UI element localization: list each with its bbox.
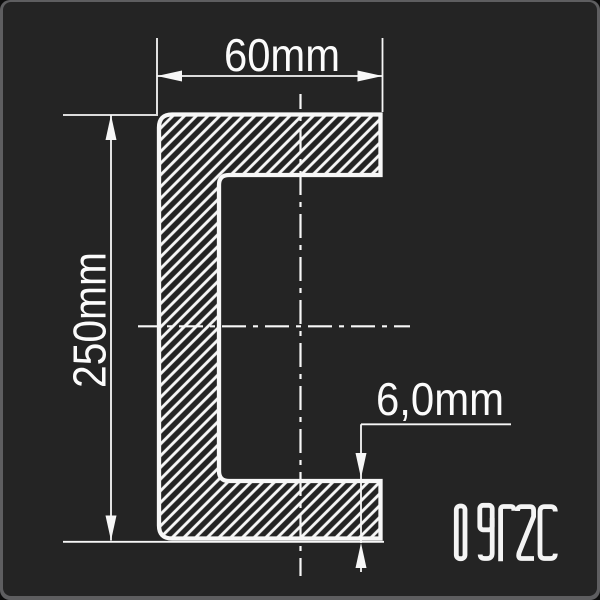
- svg-text:250mm: 250mm: [64, 252, 116, 388]
- svg-text:6,0mm: 6,0mm: [376, 373, 504, 425]
- svg-text:60mm: 60mm: [224, 29, 340, 81]
